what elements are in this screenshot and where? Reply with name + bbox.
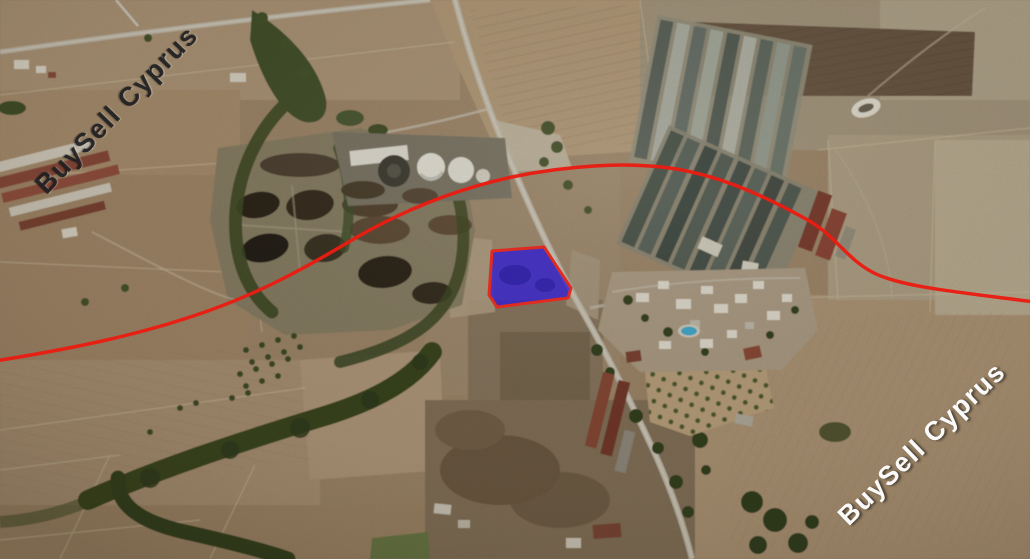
property-satellite-image[interactable]: BuySell Cyprus BuySell Cyprus bbox=[0, 0, 1030, 559]
satellite-map bbox=[0, 0, 1030, 559]
